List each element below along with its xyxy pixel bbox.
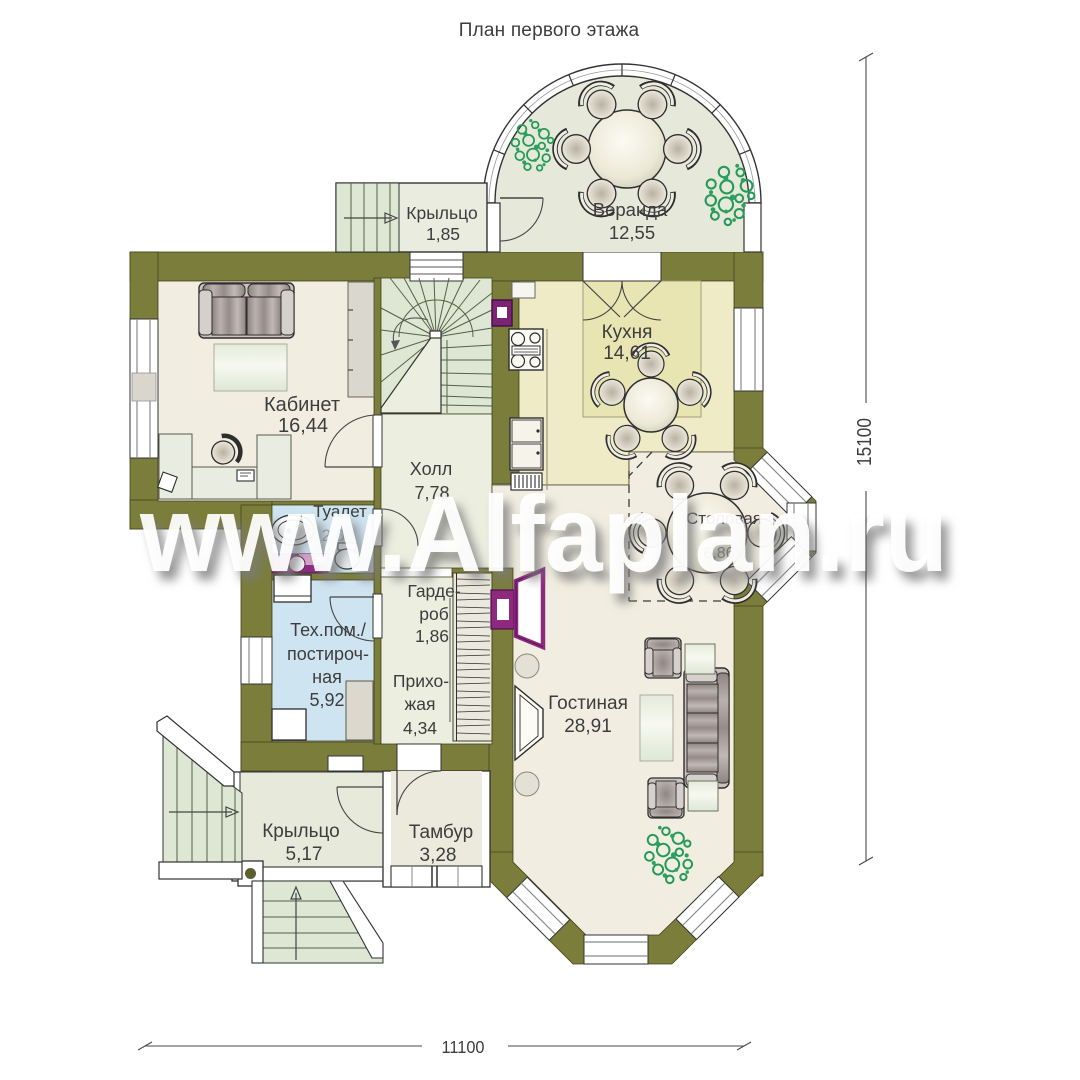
svg-text:5,92: 5,92 xyxy=(309,690,344,710)
svg-text:1,85: 1,85 xyxy=(426,224,460,244)
svg-text:www.Alfaplan.ru: www.Alfaplan.ru xyxy=(139,473,948,594)
svg-text:1,86: 1,86 xyxy=(415,626,449,646)
svg-text:11100: 11100 xyxy=(442,1037,485,1057)
svg-text:Кабинет: Кабинет xyxy=(264,394,340,416)
svg-text:постироч-: постироч- xyxy=(287,644,369,664)
svg-text:Крыльцо: Крыльцо xyxy=(262,821,340,842)
svg-text:5,17: 5,17 xyxy=(286,844,323,865)
svg-text:План первого этажа: План первого этажа xyxy=(459,20,640,41)
svg-text:15100: 15100 xyxy=(854,418,876,466)
svg-text:Кухня: Кухня xyxy=(602,322,653,343)
svg-text:ная: ная xyxy=(312,667,342,687)
svg-text:Тех.пом./: Тех.пом./ xyxy=(290,620,366,640)
svg-text:роб: роб xyxy=(419,604,449,624)
svg-text:16,44: 16,44 xyxy=(278,415,328,437)
svg-text:Прихо-: Прихо- xyxy=(393,671,449,691)
svg-text:Крыльцо: Крыльцо xyxy=(406,203,477,223)
svg-text:28,91: 28,91 xyxy=(564,716,612,737)
svg-text:Веранда: Веранда xyxy=(593,199,668,220)
svg-text:12,55: 12,55 xyxy=(609,222,655,243)
svg-text:4,34: 4,34 xyxy=(403,718,437,738)
svg-text:Тамбур: Тамбур xyxy=(409,822,474,843)
svg-text:Гостиная: Гостиная xyxy=(548,693,628,714)
svg-text:3,28: 3,28 xyxy=(420,845,457,866)
svg-text:14,61: 14,61 xyxy=(603,343,651,364)
svg-text:жая: жая xyxy=(405,694,436,714)
